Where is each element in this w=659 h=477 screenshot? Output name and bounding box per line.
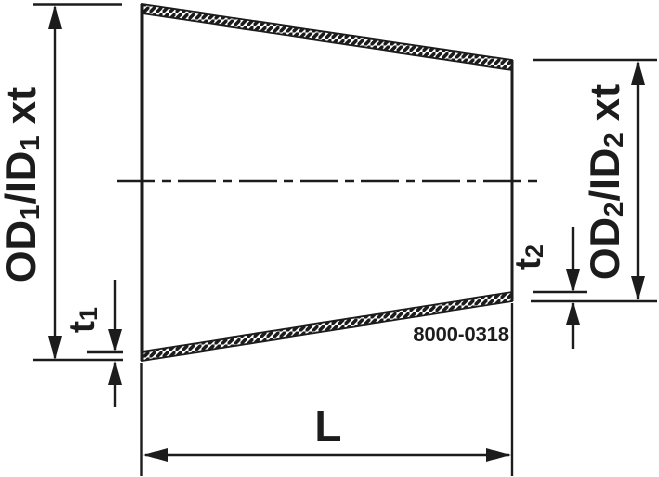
od1-label: OD1/ID1xt [0, 87, 45, 283]
od2-dimension: OD2/ID2xt [531, 60, 657, 301]
length-arrow-left-icon [143, 448, 168, 462]
reducer-top-wall [142, 4, 512, 70]
t1-dimension: t1 [61, 280, 124, 407]
length-label: L [315, 402, 342, 451]
t2-arrow-down-icon [566, 269, 580, 292]
t1-arrow-up-icon [108, 361, 122, 385]
od2-label: OD2/ID2xt [581, 84, 629, 280]
t2-dimension: t2 [507, 227, 588, 349]
t1-label: t1 [61, 307, 104, 333]
reducer-technical-drawing: OD1/ID1xt t1 OD2/ID2xt t2 [0, 0, 659, 477]
t1-arrow-down-icon [108, 329, 122, 352]
reducer-body [117, 4, 540, 361]
od1-dimension: OD1/ID1xt [0, 5, 123, 361]
length-arrow-right-icon [486, 448, 511, 462]
drawing-canvas: OD1/ID1xt t1 OD2/ID2xt t2 [0, 0, 659, 477]
t2-arrow-up-icon [566, 302, 580, 325]
od1-arrow-down-icon [48, 336, 62, 360]
od1-arrow-up-icon [48, 5, 62, 29]
od2-arrow-up-icon [631, 61, 645, 85]
od2-arrow-down-icon [631, 276, 645, 300]
part-number-label: 8000-0318 [413, 324, 509, 346]
